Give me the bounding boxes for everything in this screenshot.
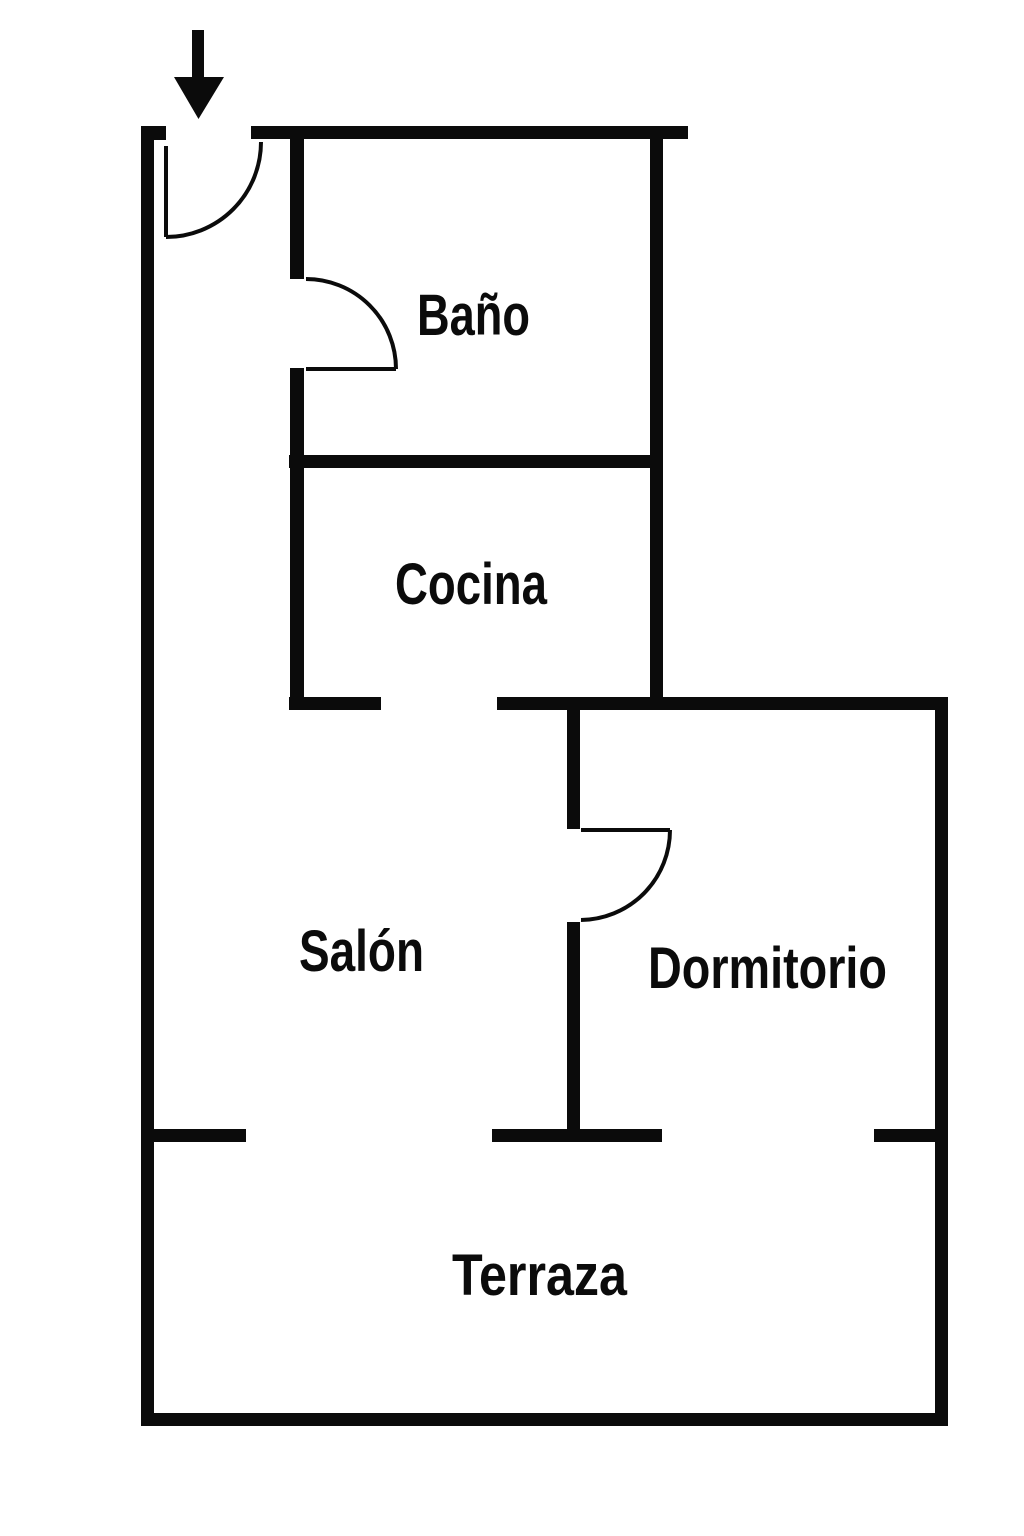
svg-text:Dormitorio: Dormitorio xyxy=(648,936,887,1001)
svg-text:Cocina: Cocina xyxy=(395,552,548,617)
svg-text:Salón: Salón xyxy=(299,919,424,984)
svg-text:Terraza: Terraza xyxy=(452,1243,628,1308)
svg-text:Baño: Baño xyxy=(417,283,530,348)
